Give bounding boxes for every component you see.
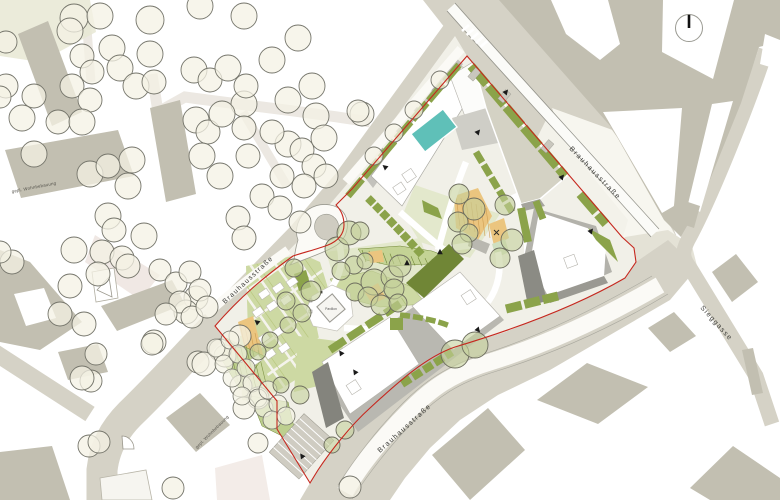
svg-text:Pavillon: Pavillon xyxy=(325,307,337,311)
